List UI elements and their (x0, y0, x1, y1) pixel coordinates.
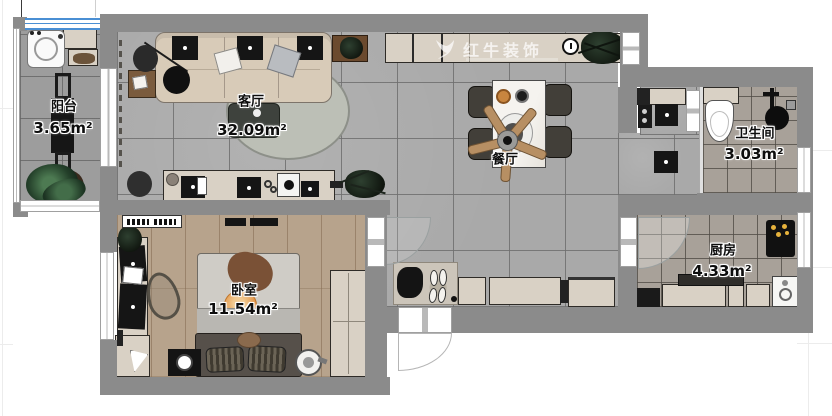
bathroom-window (797, 147, 811, 193)
wall-shelf (250, 218, 278, 226)
shoe (430, 270, 438, 286)
room-label-bedroom: 卧室 (231, 280, 257, 299)
side-table (128, 70, 156, 98)
burner (785, 231, 789, 235)
vanity-dark-cabinet (637, 88, 650, 105)
shower-control (786, 100, 796, 110)
wardrobe-divider (348, 273, 349, 374)
room-area-living: 32.09m² (217, 121, 287, 139)
desk-shelf (117, 330, 123, 346)
grid-line (808, 333, 809, 416)
kitchen-door (620, 217, 637, 267)
bedroom-window (100, 252, 114, 340)
room-label-bathroom: 卫生间 (735, 123, 774, 142)
sofa-pillow (297, 36, 323, 60)
washer-drum (34, 37, 58, 61)
sofa-pillow (172, 36, 198, 60)
room-label-living: 客厅 (238, 91, 264, 110)
balcony-shelf (68, 49, 98, 66)
wall-bedroom-left-top (100, 215, 117, 252)
wall-living-bedroom (117, 200, 390, 215)
ac-vent (122, 215, 182, 228)
deco-ring (270, 186, 277, 193)
entry-door (398, 307, 452, 333)
table-plant (340, 37, 363, 59)
grid-line (813, 267, 832, 268)
wall-balcony-living-top (100, 18, 117, 68)
kitchen-sink (772, 276, 798, 307)
mug (253, 109, 261, 117)
room-area-bathroom: 3.03m² (724, 145, 783, 163)
dimension-line (95, 0, 96, 17)
dining-chair (543, 84, 572, 116)
room-label-balcony: 阳台 (51, 96, 77, 115)
basin-tap (642, 118, 647, 123)
wardrobe-divider (333, 321, 365, 322)
bathroom-door (686, 90, 700, 132)
sofa-pillow (237, 36, 263, 60)
washbasin (638, 105, 652, 128)
washer-button (30, 31, 34, 35)
monitor (118, 283, 147, 329)
entry-door-arc (398, 333, 452, 371)
wall-bathroom-top (620, 67, 813, 87)
shoe (439, 269, 447, 286)
sink-basin (779, 288, 792, 301)
table-lamp (176, 354, 193, 371)
room-label-dining: 餐厅 (492, 149, 518, 168)
stored-items (73, 53, 95, 64)
shoe-cabinet (568, 277, 615, 307)
kitchen-cabinet (728, 284, 744, 307)
balcony-window-bottom (20, 200, 100, 212)
grid-line (797, 343, 832, 344)
bed-pillow (205, 346, 244, 373)
media-device (277, 173, 300, 197)
sofa-seat-line (168, 69, 320, 70)
balcony-window-left (13, 28, 20, 203)
burner (771, 225, 776, 230)
wall-bathroom-bottom (697, 193, 797, 215)
balcony-sliding-door (100, 68, 117, 167)
fan-center (303, 357, 314, 368)
plate-dark (515, 89, 529, 103)
balcony-cabinet (63, 28, 97, 49)
bedroom-door (367, 217, 385, 267)
grid-line (2, 0, 3, 416)
ceiling-light (654, 151, 678, 173)
burner (782, 224, 787, 229)
dimension-line (21, 0, 22, 17)
shoe-cabinet (489, 277, 561, 305)
bed-small-cushion (237, 332, 261, 348)
watermark-logo-icon (433, 38, 457, 60)
book (132, 75, 148, 90)
notebook (122, 266, 144, 285)
wall-balcony-living-bottom (100, 167, 117, 215)
wall-kitchen-top (618, 195, 697, 215)
room-area-balcony: 3.65m² (33, 119, 92, 137)
device-knob (284, 180, 294, 190)
pot (166, 173, 179, 186)
photo-frame (197, 177, 207, 195)
pouf (127, 171, 152, 197)
washer-button (37, 31, 41, 35)
wardrobe (330, 270, 368, 377)
room-label-kitchen: 厨房 (710, 240, 736, 259)
kitchen-cabinet (662, 284, 726, 307)
wall-right (797, 87, 813, 333)
speaker (237, 177, 261, 198)
wall-shelf (225, 218, 246, 226)
window-glazing-line (25, 23, 100, 24)
bag (397, 267, 423, 298)
vanity-counter (644, 88, 686, 105)
watermark-subline (466, 58, 558, 61)
bedroom-plant (118, 226, 142, 252)
speaker (301, 181, 319, 197)
kitchen-base-unit (637, 288, 660, 307)
nightstand (168, 349, 201, 376)
toilet-rim (710, 111, 729, 137)
balcony-window-top (25, 18, 100, 30)
bed-pillow (247, 345, 286, 373)
floor-plan: 红牛装饰 (0, 0, 832, 416)
washing-machine (27, 30, 65, 68)
wall-hall-mid (618, 87, 637, 133)
sink-faucet (782, 280, 788, 286)
stove (766, 220, 795, 257)
room-area-bedroom: 11.54m² (208, 300, 278, 318)
dining-chair (543, 126, 572, 158)
wall-top (100, 14, 648, 32)
wall-bedroom-bottom (100, 377, 390, 395)
grid-line (0, 344, 13, 345)
room-area-kitchen: 4.33m² (692, 262, 751, 280)
plate-orange (496, 89, 511, 104)
cabinet-divider (412, 34, 414, 62)
vent-grill (154, 219, 176, 225)
hall-window (622, 32, 640, 65)
ceiling-light (655, 104, 678, 126)
fan-motor (503, 136, 512, 145)
burner (776, 232, 781, 237)
basin-tap (642, 109, 647, 114)
grid-line (0, 108, 13, 109)
entry-bench (560, 280, 568, 303)
kitchen-cabinet (746, 284, 770, 307)
kitchen-window (797, 212, 811, 268)
shoe-cabinet (458, 277, 486, 305)
floor-lamp-shade (163, 66, 190, 94)
pouf (133, 45, 158, 72)
grid-line (813, 150, 832, 151)
vent-grill (127, 219, 149, 225)
door-handle (451, 296, 457, 302)
washer-knob (58, 34, 63, 39)
curtain-line (119, 40, 122, 172)
